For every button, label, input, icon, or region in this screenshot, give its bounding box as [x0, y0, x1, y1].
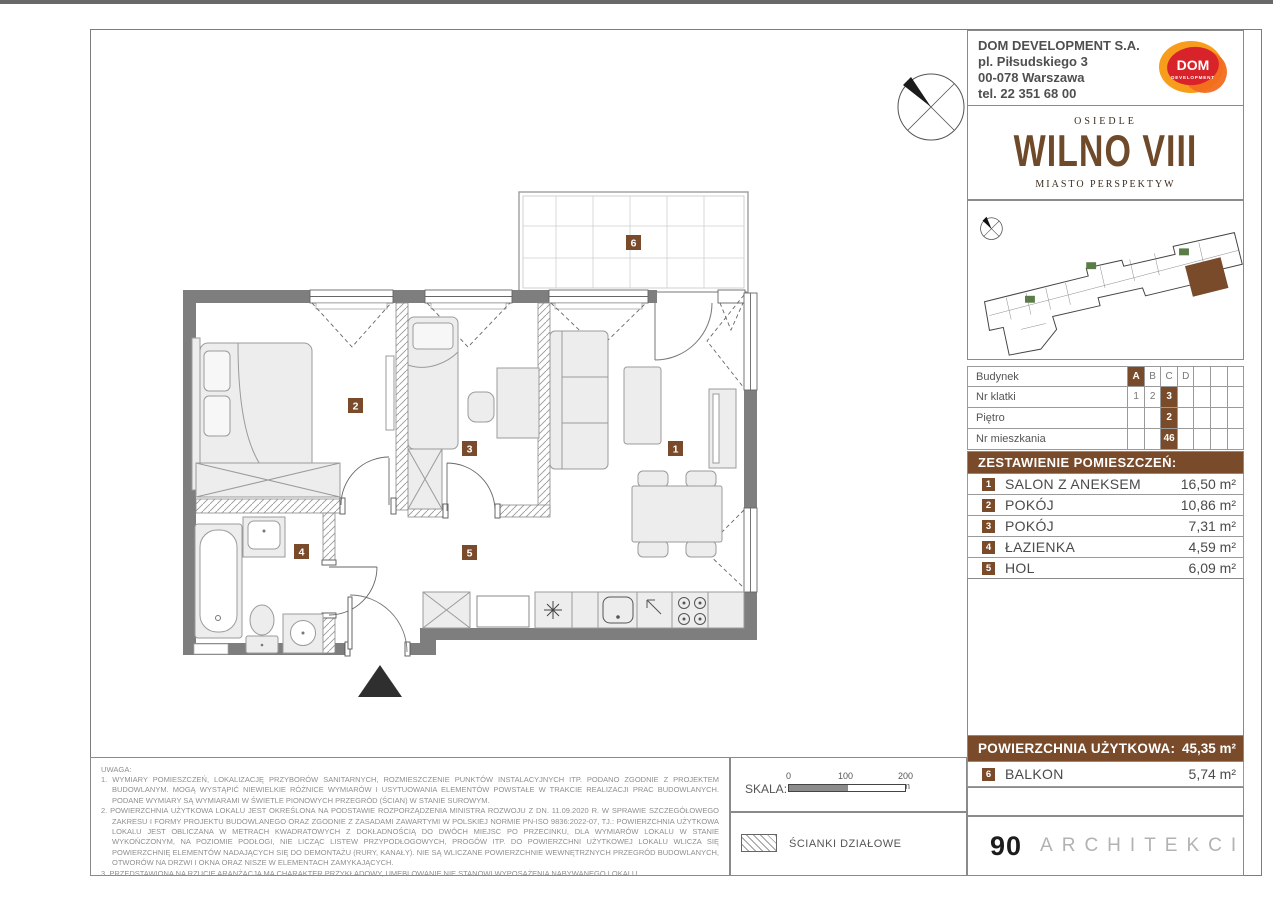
brand-box: OSIEDLE WILNO VIII MIASTO PERSPEKTYW	[967, 105, 1244, 200]
fridge	[477, 596, 529, 627]
room-name: ŁAZIENKA	[1005, 539, 1075, 555]
stairwell-mark	[1086, 262, 1096, 269]
architect-name: ARCHITEKCI	[1040, 835, 1245, 857]
room-area: 10,86 m²	[1181, 497, 1236, 513]
scale-box: SKALA: 0 100 200 cm	[730, 757, 967, 812]
notes-title: UWAGA:	[101, 765, 719, 774]
room-number-badge: 3	[982, 520, 995, 533]
room-number-badge: 6	[982, 768, 995, 781]
counter	[535, 592, 744, 628]
site-compass-icon	[981, 217, 1003, 240]
bathroom-fixtures	[195, 517, 323, 653]
wall-niche	[194, 644, 228, 654]
room-name: HOL	[1005, 560, 1035, 576]
site-plan	[968, 201, 1243, 359]
room-area: 6,09 m²	[1189, 560, 1236, 576]
room-row: 3 POKÓJ 7,31 m²	[967, 516, 1244, 537]
badge-4: 4	[299, 547, 305, 559]
entrance-marker-icon	[358, 665, 402, 697]
table-row: Budynek A B C D	[967, 366, 1244, 387]
badge-6: 6	[631, 238, 637, 250]
corner-window-right	[744, 293, 757, 390]
note-item: 1. WYMIARY POMIESZCZEŃ, LOKALIZACJĘ PRZY…	[101, 775, 719, 806]
scale-label: SKALA:	[745, 782, 787, 796]
unit-location-table: Budynek A B C D Nr klatki 1 2 3 Piętro 2…	[967, 366, 1244, 451]
room-area: 4,59 m²	[1189, 539, 1236, 555]
total-area-bar: POWIERZCHNIA UŻYTKOWA: 45,35 m²	[967, 735, 1244, 762]
balcony-row: 6 BALKON 5,74 m²	[967, 762, 1244, 787]
architect-number: 90	[990, 831, 1022, 862]
brand-osiedle: OSIEDLE	[968, 116, 1243, 127]
room-area: 16,50 m²	[1181, 476, 1236, 492]
room-number-badge: 2	[982, 499, 995, 512]
floor-plan: 1 2 3 4 5 6	[90, 29, 967, 757]
corner-window-top	[718, 290, 745, 303]
badge-1: 1	[673, 444, 679, 456]
window-salon	[549, 290, 648, 309]
partition-hatch-swatch	[741, 834, 777, 852]
company-info-box: DOM DEVELOPMENT S.A. pl. Piłsudskiego 3 …	[967, 30, 1244, 106]
room2-furniture	[192, 338, 394, 497]
svg-text:DOM: DOM	[1177, 57, 1210, 73]
site-plan-box	[967, 200, 1244, 360]
table-row: Nr mieszkania 46	[967, 429, 1244, 450]
spacer-box	[967, 578, 1244, 736]
note-item: 3. PRZEDSTAWIONA NA RZUCIE ARANŻACJA MA …	[101, 869, 719, 879]
window-room2	[310, 290, 393, 309]
room-row: 2 POKÓJ 10,86 m²	[967, 495, 1244, 516]
total-area-label: POWIERZCHNIA UŻYTKOWA:	[978, 741, 1175, 756]
partition-legend-label: ŚCIANKI DZIAŁOWE	[789, 838, 902, 850]
badge-2: 2	[353, 401, 359, 413]
notes-box: UWAGA: 1. WYMIARY POMIESZCZEŃ, LOKALIZAC…	[90, 757, 730, 876]
room-row: 1 SALON Z ANEKSEM 16,50 m²	[967, 474, 1244, 495]
svg-text:DEVELOPMENT: DEVELOPMENT	[1171, 75, 1215, 80]
spacer-box	[967, 787, 1244, 816]
room-number-badge: 5	[982, 562, 995, 575]
brand-tagline: MIASTO PERSPEKTYW	[968, 179, 1243, 190]
kitchen	[423, 592, 744, 628]
badge-3: 3	[467, 444, 473, 456]
note-item: 2. POWIERZCHNIA UŻYTKOWA LOKALU JEST OKR…	[101, 806, 719, 868]
table-row: Piętro 2	[967, 408, 1244, 429]
compass-icon	[898, 74, 964, 140]
room3-furniture	[408, 317, 539, 509]
entrance-door	[345, 595, 410, 656]
table-row: Nr klatki 1 2 3	[967, 387, 1244, 408]
room-row: 4 ŁAZIENKA 4,59 m²	[967, 537, 1244, 558]
room-row: 5 HOL 6,09 m²	[967, 558, 1244, 579]
room-number-badge: 4	[982, 541, 995, 554]
stairwell-mark	[1179, 248, 1189, 255]
legend-box: ŚCIANKI DZIAŁOWE	[730, 812, 967, 876]
balcony-door	[655, 303, 712, 360]
room-area: 5,74 m²	[1189, 766, 1236, 782]
dom-development-logo: DOM DEVELOPMENT	[1157, 38, 1229, 98]
scale-bar	[788, 784, 906, 792]
room-name: BALKON	[1005, 766, 1064, 782]
room-name: POKÓJ	[1005, 518, 1054, 534]
rooms-header-bar: ZESTAWIENIE POMIESZCZEŃ:	[967, 451, 1244, 474]
total-area-value: 45,35 m²	[1182, 741, 1236, 756]
window-room3	[425, 290, 512, 309]
rooms-list: 1 SALON Z ANEKSEM 16,50 m² 2 POKÓJ 10,86…	[967, 474, 1244, 579]
architect-logo-box: 90 ARCHITEKCI	[967, 816, 1244, 876]
salon-furniture	[550, 331, 736, 557]
stairwell-mark	[1025, 296, 1035, 303]
window-right-lower	[744, 508, 757, 592]
room-area: 7,31 m²	[1189, 518, 1236, 534]
room-name: SALON Z ANEKSEM	[1005, 476, 1141, 492]
room-name: POKÓJ	[1005, 497, 1054, 513]
badge-5: 5	[467, 548, 473, 560]
room-number-badge: 1	[982, 478, 995, 491]
brand-name: WILNO VIII	[968, 127, 1243, 178]
page-top-edge	[0, 0, 1273, 4]
balcony-row-box: 6 BALKON 5,74 m²	[967, 762, 1244, 787]
